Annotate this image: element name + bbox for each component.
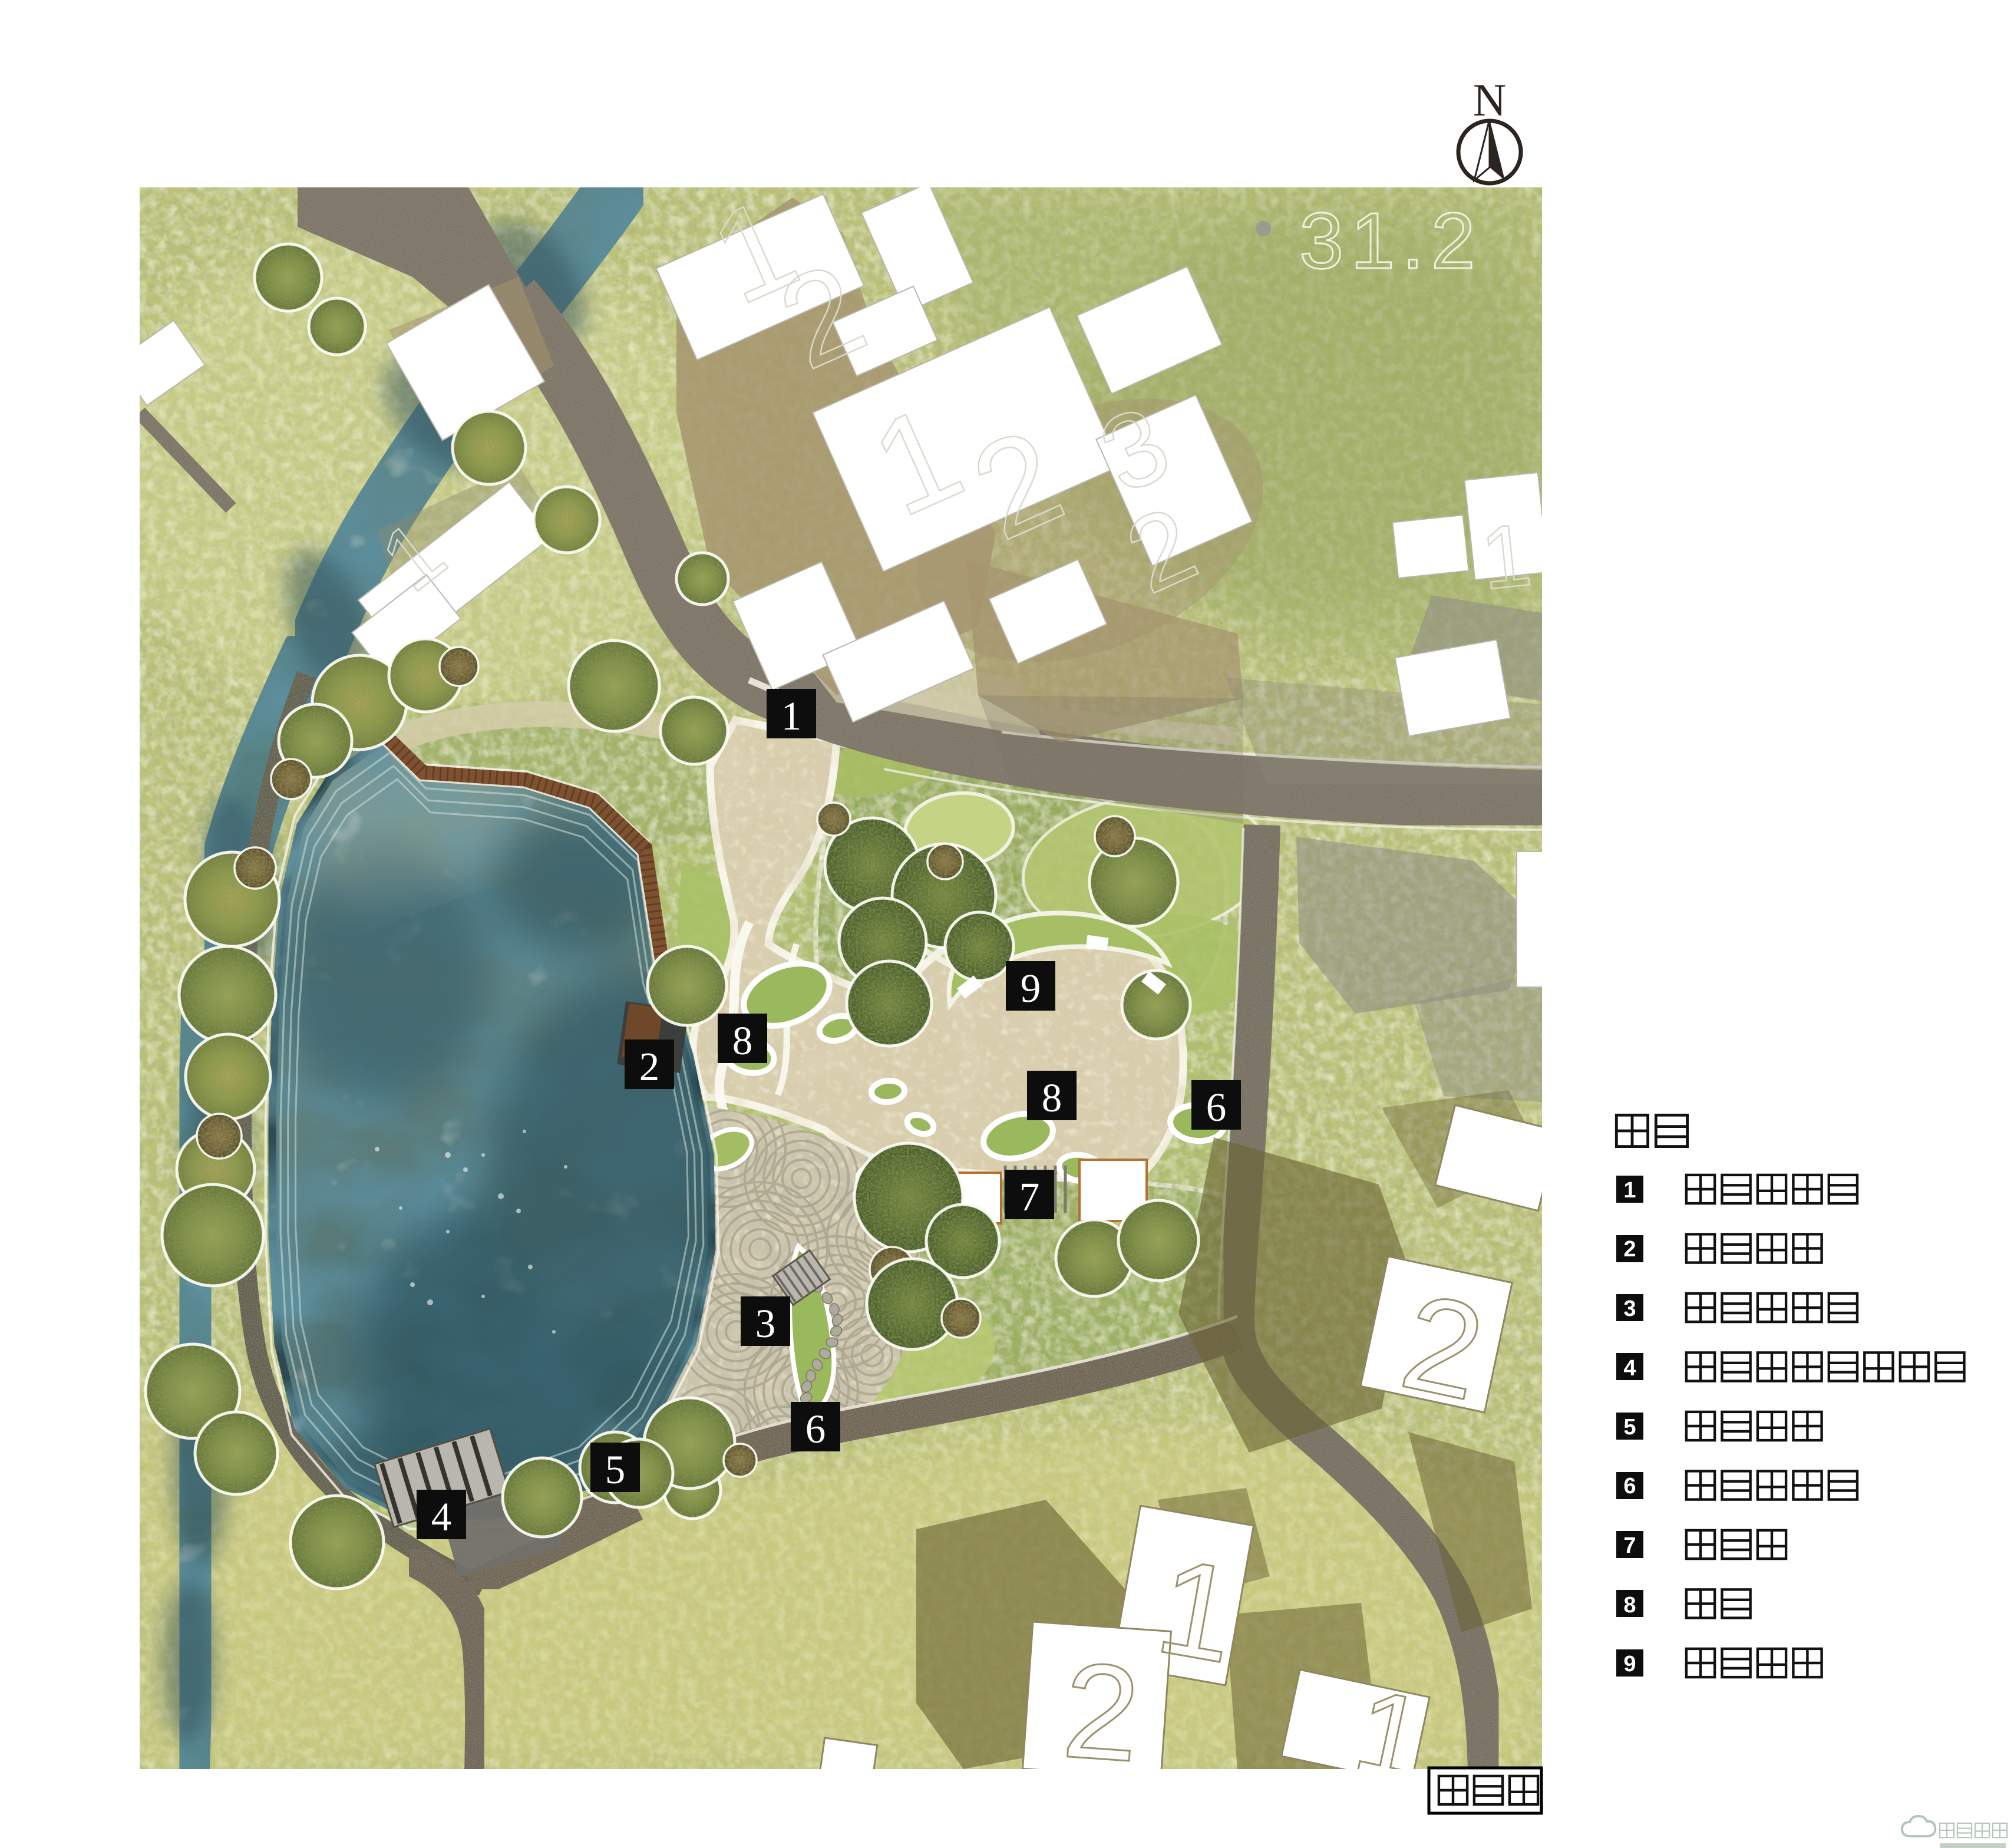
svg-text:8: 8 xyxy=(1042,1075,1062,1120)
svg-text:2: 2 xyxy=(639,1044,660,1089)
svg-text:3: 3 xyxy=(755,1301,776,1346)
svg-text:8: 8 xyxy=(1623,1593,1636,1618)
svg-text:4: 4 xyxy=(1623,1356,1636,1381)
svg-text:1: 1 xyxy=(1477,504,1536,608)
svg-text:8: 8 xyxy=(732,1018,753,1063)
svg-text:4: 4 xyxy=(431,1494,452,1539)
svg-text:5: 5 xyxy=(1623,1415,1636,1440)
svg-text:5: 5 xyxy=(605,1447,626,1492)
svg-text:6: 6 xyxy=(1206,1085,1227,1130)
svg-text:6: 6 xyxy=(805,1407,826,1451)
svg-text:9: 9 xyxy=(1623,1652,1636,1677)
svg-text:2: 2 xyxy=(1059,1634,1145,1790)
svg-text:3: 3 xyxy=(1623,1296,1636,1321)
svg-text:31.2: 31.2 xyxy=(1299,196,1483,285)
svg-text:2: 2 xyxy=(1623,1237,1636,1262)
svg-text:9: 9 xyxy=(1021,966,1041,1011)
svg-text:N: N xyxy=(1473,74,1506,126)
svg-text:1: 1 xyxy=(781,694,802,738)
svg-text:7: 7 xyxy=(1019,1174,1040,1219)
svg-text:7: 7 xyxy=(1623,1533,1636,1558)
svg-text:6: 6 xyxy=(1623,1474,1636,1499)
svg-text:1: 1 xyxy=(1623,1178,1636,1203)
